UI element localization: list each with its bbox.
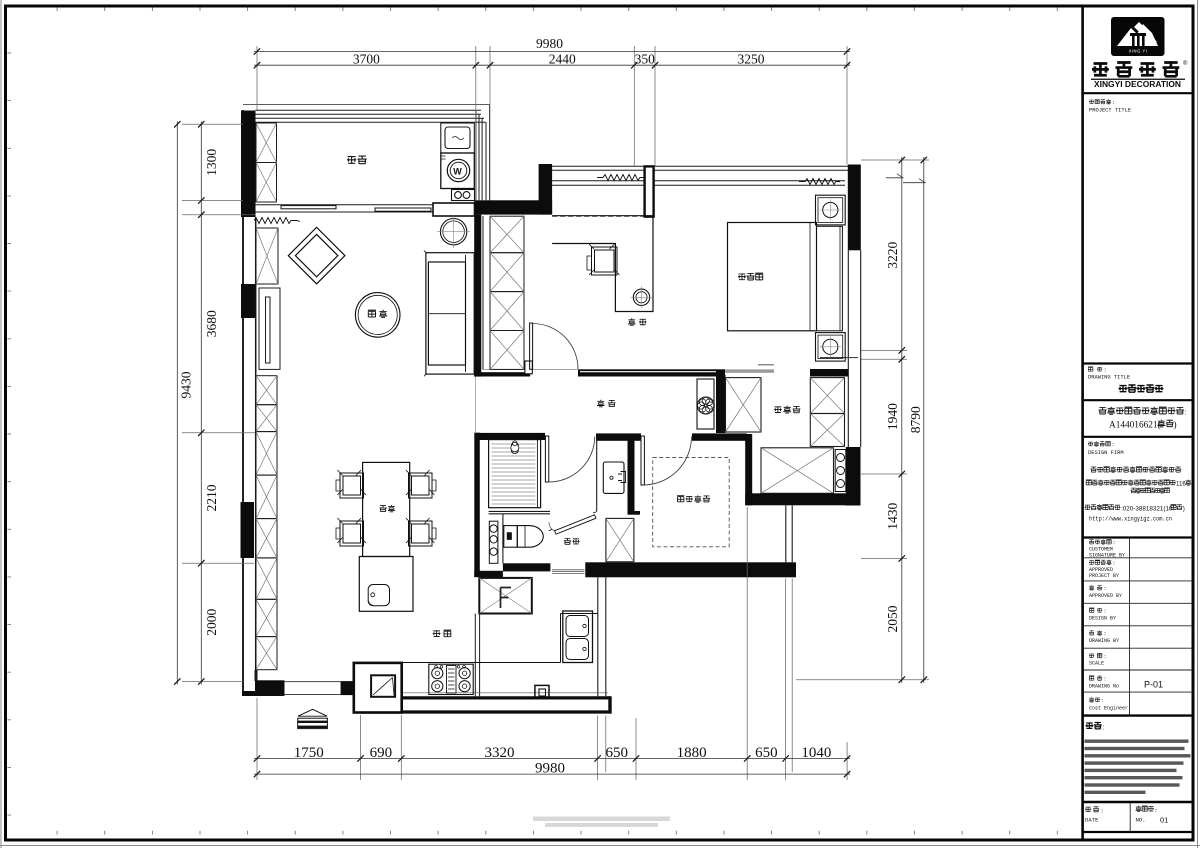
svg-text:8790: 8790 xyxy=(908,406,923,433)
svg-text::: : xyxy=(1101,807,1104,814)
svg-text:DESIGN FIRM: DESIGN FIRM xyxy=(1088,450,1124,456)
svg-text:NO.: NO. xyxy=(1136,816,1146,823)
svg-text:1430: 1430 xyxy=(885,502,900,529)
svg-text:): ) xyxy=(1174,419,1177,430)
svg-text:®: ® xyxy=(1183,60,1188,67)
svg-text::: : xyxy=(1184,408,1186,417)
svg-text::: : xyxy=(1113,540,1116,546)
svg-text:9980: 9980 xyxy=(536,36,563,51)
svg-text:W: W xyxy=(453,167,462,177)
svg-text:650: 650 xyxy=(606,745,629,761)
svg-text::020-38818321(10: :020-38818321(10 xyxy=(1121,505,1173,512)
svg-text:SIGNATURE BY: SIGNATURE BY xyxy=(1089,553,1125,559)
svg-text:http://www.xingyigz.com.cn: http://www.xingyigz.com.cn xyxy=(1089,516,1172,523)
svg-text::: : xyxy=(1104,631,1107,637)
svg-text:A144016621(: A144016621( xyxy=(1109,419,1161,430)
svg-text:SCALE: SCALE xyxy=(1089,661,1104,667)
svg-text:Cost Engineer: Cost Engineer xyxy=(1089,705,1128,711)
svg-text:): ) xyxy=(1183,505,1185,512)
svg-text::: : xyxy=(1102,725,1104,732)
svg-text:690: 690 xyxy=(370,745,393,761)
svg-text:XING YI: XING YI xyxy=(1129,49,1148,54)
svg-text:1880: 1880 xyxy=(677,745,707,761)
svg-text::: : xyxy=(1101,698,1104,704)
svg-text:9980: 9980 xyxy=(535,760,565,776)
svg-text:3680: 3680 xyxy=(204,310,219,337)
svg-text:1750: 1750 xyxy=(294,745,324,761)
svg-text::: : xyxy=(1104,654,1107,660)
svg-text::: : xyxy=(1104,608,1107,614)
svg-text:9430: 9430 xyxy=(179,371,194,398)
svg-text:1300: 1300 xyxy=(204,149,219,176)
svg-text::: : xyxy=(1104,676,1107,682)
svg-text:DRAWING No: DRAWING No xyxy=(1089,683,1119,689)
svg-text::: : xyxy=(1104,368,1107,374)
svg-text::: : xyxy=(1113,561,1116,567)
svg-text:DRAWING BY: DRAWING BY xyxy=(1089,638,1119,644)
svg-text:P-01: P-01 xyxy=(1144,680,1163,690)
svg-text:2050: 2050 xyxy=(885,605,900,632)
svg-text:DATE: DATE xyxy=(1085,817,1099,824)
svg-text:3700: 3700 xyxy=(353,52,380,67)
svg-text:1040: 1040 xyxy=(801,745,831,761)
svg-text:XINGYI DECORATION: XINGYI DECORATION xyxy=(1094,80,1181,89)
svg-text:PROJECT TITLE: PROJECT TITLE xyxy=(1089,107,1131,113)
svg-text::: : xyxy=(1112,100,1115,106)
svg-text::: : xyxy=(1104,586,1107,592)
svg-text:01: 01 xyxy=(1160,815,1168,824)
svg-text:650: 650 xyxy=(755,745,778,761)
svg-text:3220: 3220 xyxy=(885,241,900,268)
svg-text:350: 350 xyxy=(635,52,656,67)
svg-text::: : xyxy=(1154,807,1157,814)
svg-text:PROJECT BY: PROJECT BY xyxy=(1089,573,1119,579)
svg-text::: : xyxy=(1112,442,1115,448)
svg-text:2000: 2000 xyxy=(204,609,219,636)
svg-text:1940: 1940 xyxy=(885,403,900,430)
svg-text:DRAWING TITLE: DRAWING TITLE xyxy=(1088,374,1130,380)
svg-text:DESIGN BY: DESIGN BY xyxy=(1089,615,1116,621)
svg-text:2210: 2210 xyxy=(204,484,219,511)
svg-text:APPROVED BY: APPROVED BY xyxy=(1089,593,1122,599)
svg-text:116: 116 xyxy=(1176,481,1186,488)
svg-text:2440: 2440 xyxy=(549,52,576,67)
svg-text:3250: 3250 xyxy=(738,52,765,67)
svg-text:3320: 3320 xyxy=(485,745,515,761)
